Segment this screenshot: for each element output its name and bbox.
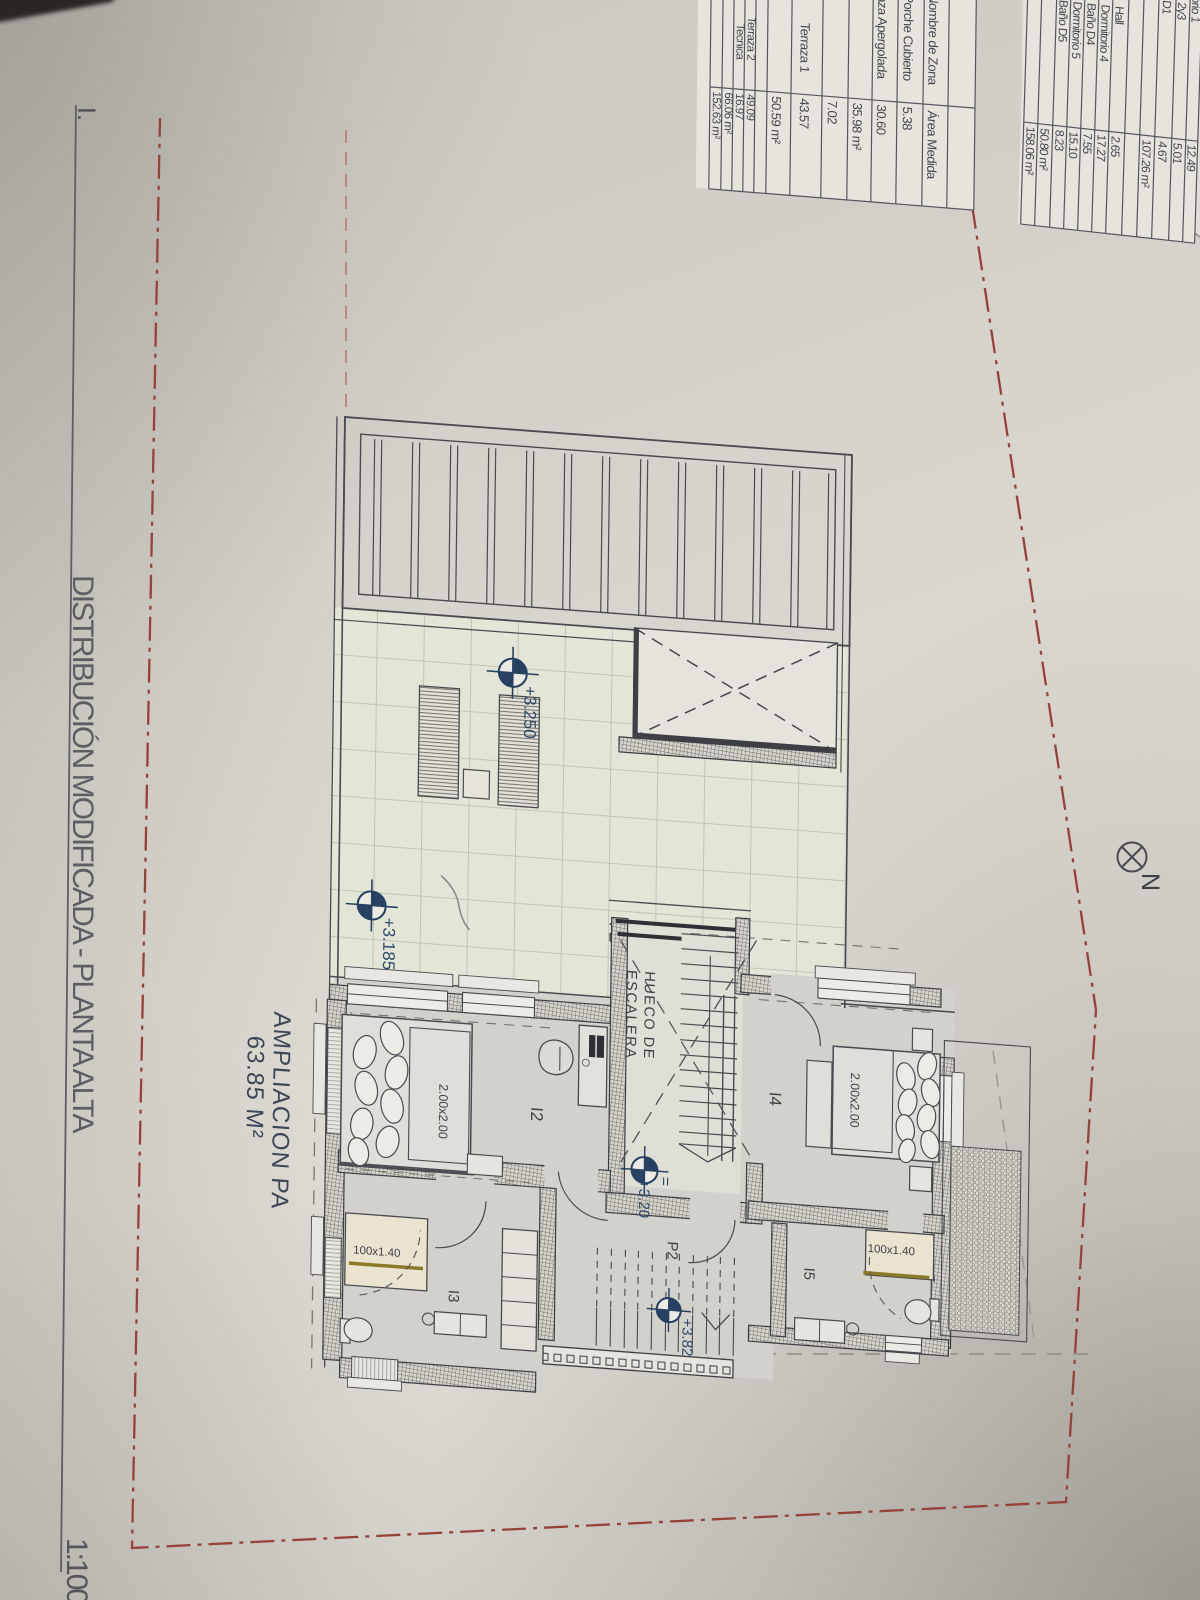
svg-text:1:100: 1:100 — [60, 1538, 93, 1600]
svg-text:N: N — [1136, 873, 1164, 891]
svg-text:66.06 m²: 66.06 m² — [721, 92, 733, 135]
svg-text:Hall: Hall — [1112, 5, 1127, 24]
svg-text:107.26 m²: 107.26 m² — [1138, 139, 1153, 189]
svg-text:Baño D1: Baño D1 — [1160, 0, 1175, 16]
svg-text:17.27: 17.27 — [1094, 134, 1109, 163]
svg-text:158.06 m²: 158.06 m² — [1022, 126, 1037, 176]
svg-text:8.23: 8.23 — [1052, 129, 1067, 152]
svg-text:I2: I2 — [527, 1106, 546, 1122]
svg-text:=: = — [656, 1176, 674, 1187]
svg-text:+3.185: +3.185 — [379, 917, 399, 971]
svg-text:35.98 m²: 35.98 m² — [849, 102, 865, 152]
svg-text:2.00x2.00: 2.00x2.00 — [847, 1072, 862, 1128]
svg-text:HUECO DE: HUECO DE — [640, 971, 657, 1061]
svg-text:5.01: 5.01 — [1170, 142, 1185, 165]
svg-text:I4: I4 — [765, 1091, 784, 1107]
svg-text:Nombre de Zona: Nombre de Zona — [925, 0, 941, 87]
svg-text:50.80 m²: 50.80 m² — [1036, 128, 1051, 172]
svg-text:I3: I3 — [445, 1289, 462, 1303]
svg-text:Porche Cubierto: Porche Cubierto — [900, 0, 916, 82]
svg-text:AMPLIACION PA: AMPLIACION PA — [266, 1011, 296, 1211]
svg-text:Baño D5: Baño D5 — [1055, 0, 1070, 43]
svg-text:12.49: 12.49 — [1184, 144, 1199, 173]
svg-text:2.65: 2.65 — [1108, 135, 1123, 158]
svg-text:I.: I. — [72, 107, 100, 121]
svg-text:63.85 M²: 63.85 M² — [241, 1035, 269, 1140]
svg-text:50.59 m²: 50.59 m² — [768, 96, 784, 146]
svg-text:152.63 m²: 152.63 m² — [709, 91, 722, 140]
svg-text:30.60: 30.60 — [874, 104, 889, 135]
svg-text:+3.250: +3.250 — [520, 685, 540, 739]
svg-text:5.38: 5.38 — [900, 106, 915, 131]
svg-text:15.10: 15.10 — [1066, 131, 1081, 160]
svg-text:ESCALERA: ESCALERA — [622, 969, 639, 1060]
svg-text:Terraza 1: Terraza 1 — [797, 22, 813, 73]
svg-text:7.55: 7.55 — [1080, 132, 1095, 155]
svg-text:Tecnica: Tecnica — [733, 23, 745, 60]
svg-text:7.02: 7.02 — [825, 100, 840, 125]
svg-text:Baño D 2y3: Baño D 2y3 — [1174, 0, 1190, 21]
svg-text:43.57: 43.57 — [797, 98, 812, 129]
svg-text:Área Medida: Área Medida — [924, 110, 940, 181]
svg-text:DISTRIBUCIÓN MODIFICADA - PLAN: DISTRIBUCIÓN MODIFICADA - PLANTA ALTA — [66, 575, 99, 1133]
svg-text:4.67: 4.67 — [1155, 141, 1170, 164]
svg-text:Terraza Apergolada: Terraza Apergolada — [874, 0, 890, 80]
svg-text:Dormitorio 1: Dormitorio 1 — [1188, 0, 1200, 24]
svg-text:I5: I5 — [800, 1267, 817, 1281]
svg-text:P2: P2 — [663, 1241, 680, 1261]
svg-text:2.00x2.00: 2.00x2.00 — [436, 1083, 451, 1139]
svg-text:+3.82: +3.82 — [678, 1318, 695, 1357]
svg-text:Baño D4: Baño D4 — [1083, 2, 1098, 46]
svg-text:+3.20: +3.20 — [635, 1179, 652, 1218]
